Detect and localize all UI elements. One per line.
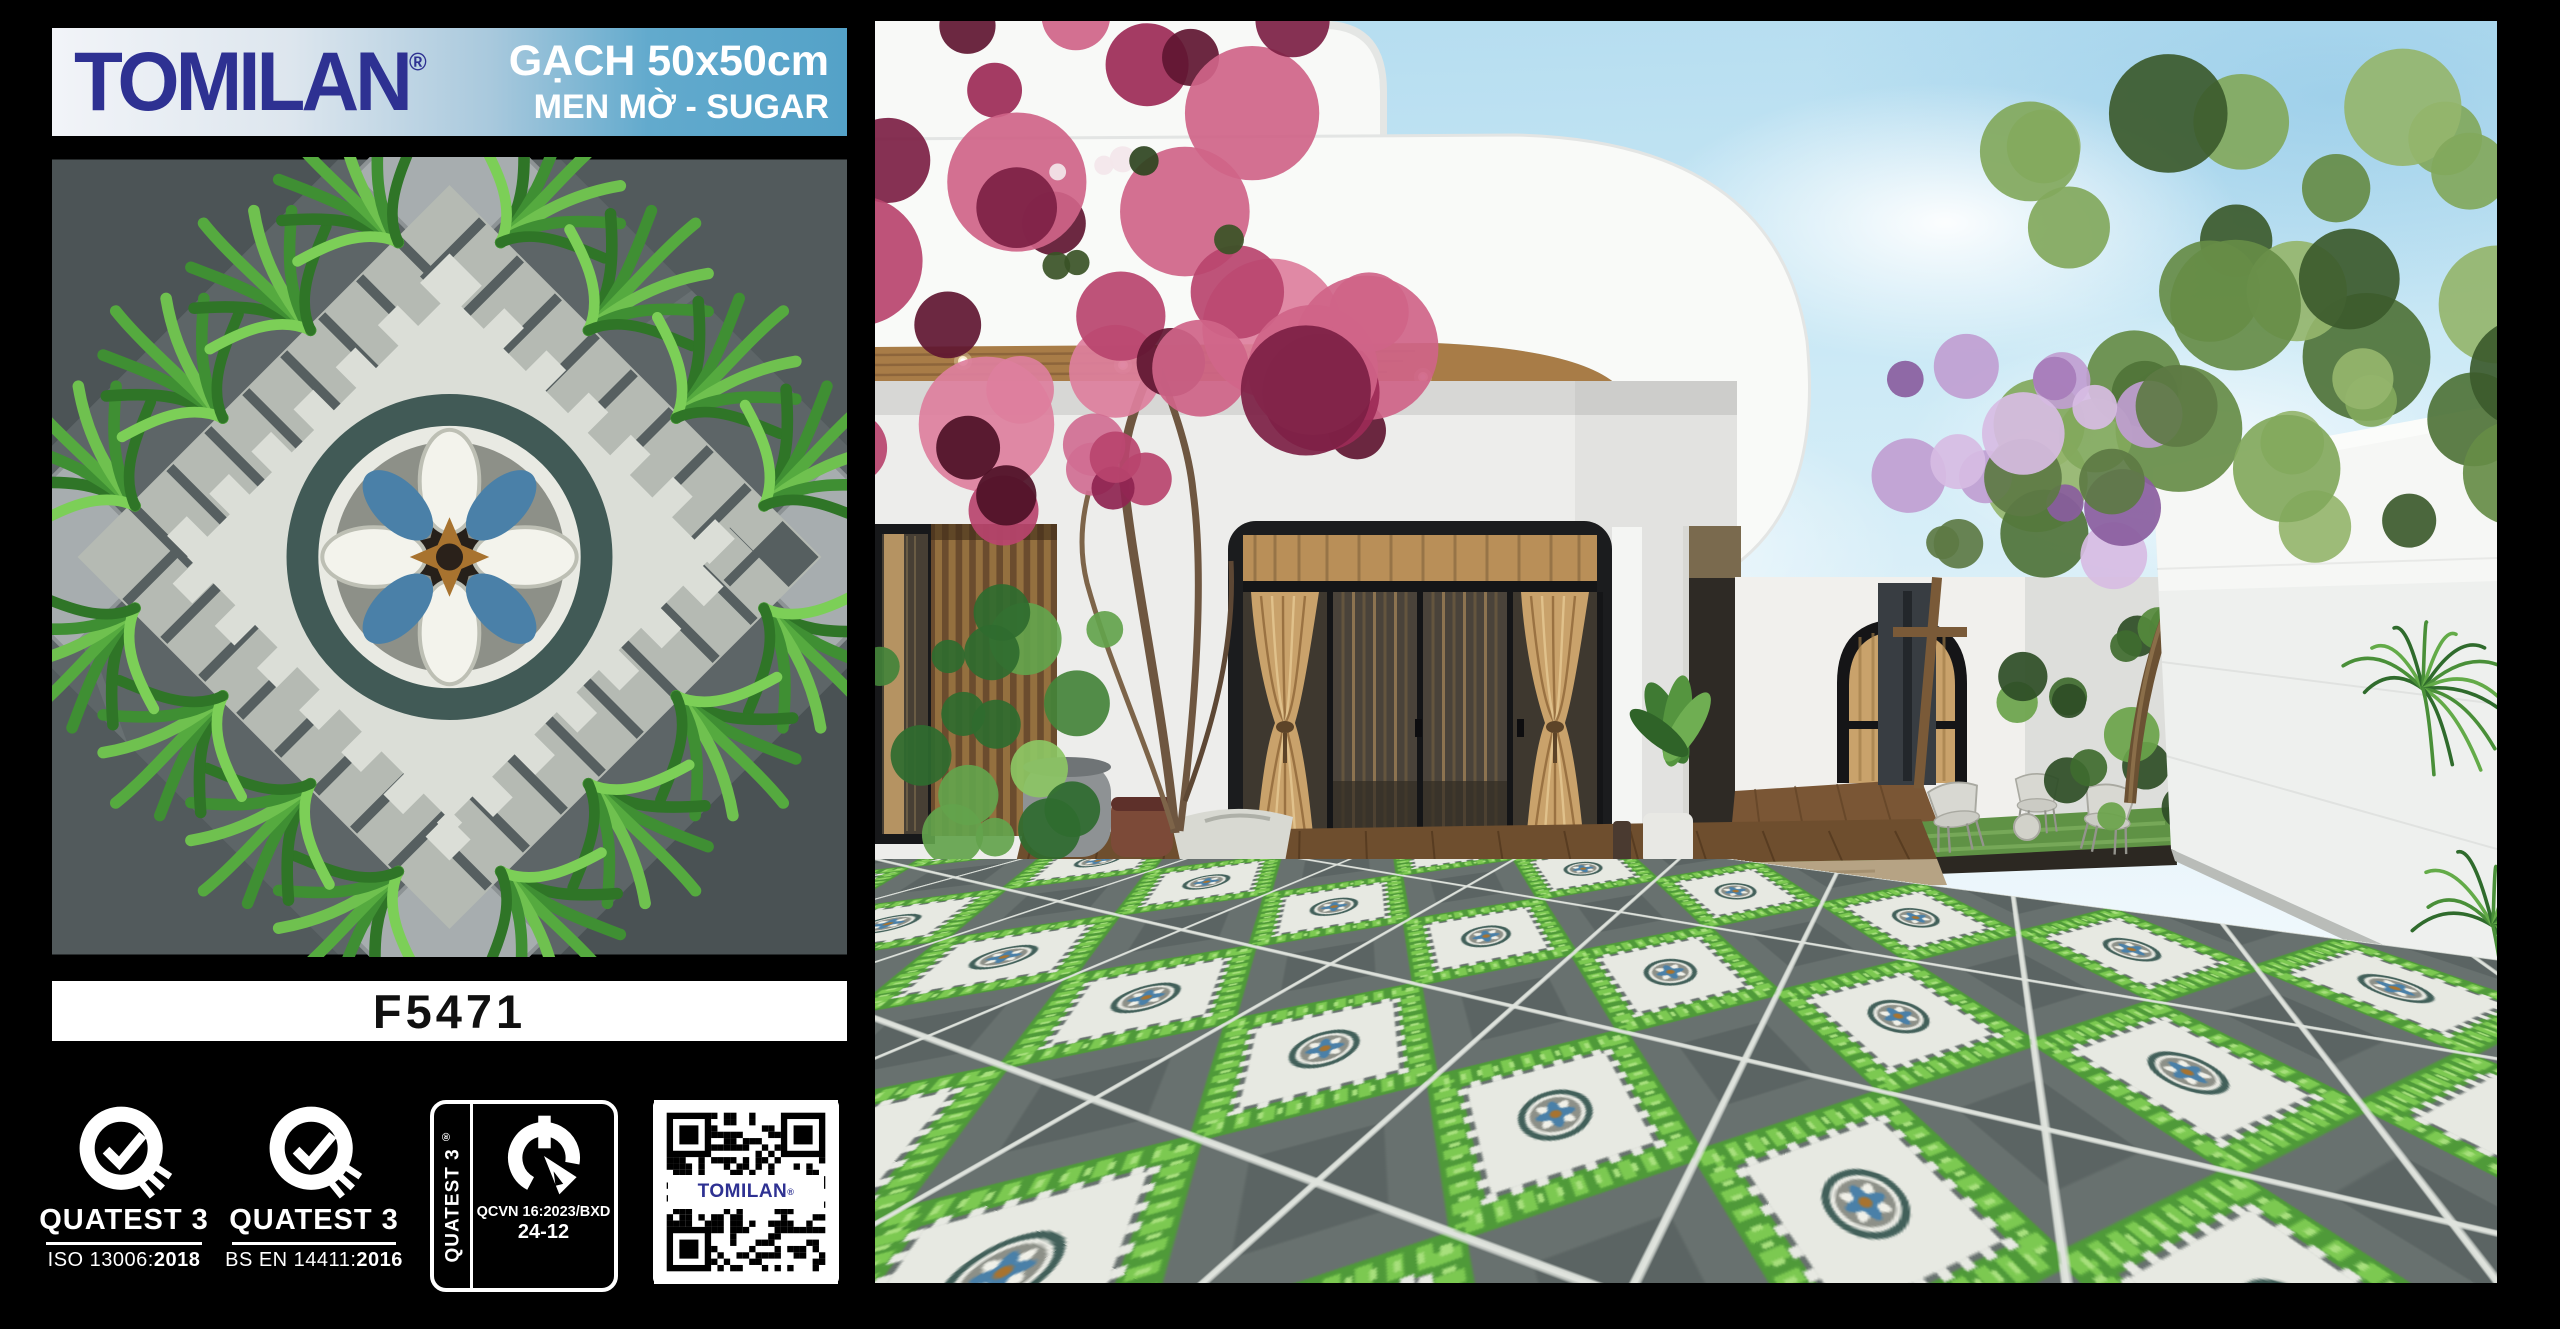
tile-poster: TOMILAN® GẠCH 50x50cm MEN MỜ - SUGAR F54… xyxy=(0,0,2560,1329)
cert-divider xyxy=(46,1242,202,1245)
qr-code: TOMILAN® xyxy=(653,1100,839,1284)
tile-size-label: GẠCH 50x50cm xyxy=(509,35,829,87)
header-banner: TOMILAN® GẠCH 50x50cm MEN MỜ - SUGAR xyxy=(52,28,847,136)
product-code-bar: F5471 xyxy=(52,981,847,1041)
cr-agency-strip: QUATEST 3 ® xyxy=(434,1104,473,1288)
cr-conformity-icon xyxy=(496,1108,592,1204)
cert-name: QUATEST 3 xyxy=(38,1204,210,1237)
cr-regulation: QCVN 16:2023/BXD xyxy=(477,1204,611,1220)
cr-mark-body: QCVN 16:2023/BXD 24-12 xyxy=(473,1104,614,1288)
cert-quatest-bsen: QUATEST 3 BS EN 14411:2016 xyxy=(224,1102,404,1272)
qr-brand-label: TOMILAN® xyxy=(668,1175,824,1208)
cert-divider xyxy=(232,1242,396,1245)
brand-name: TOMILAN xyxy=(74,35,409,128)
certifications-row: QUATEST 3 ISO 13006:2018 QUATEST 3 BS EN… xyxy=(0,1098,860,1298)
tile-sample-image xyxy=(52,157,847,957)
cr-certificate-number: 24-12 xyxy=(518,1221,569,1244)
brand-logo: TOMILAN® xyxy=(52,40,427,123)
cert-cr-mark: QUATEST 3 ® QCVN 16:2023/BXD 24-12 xyxy=(430,1100,618,1292)
cert-quatest-iso: QUATEST 3 ISO 13006:2018 xyxy=(38,1102,210,1272)
cert-name: QUATEST 3 xyxy=(224,1204,404,1237)
house-render xyxy=(875,21,2497,1283)
product-code: F5471 xyxy=(373,984,526,1039)
quatest-check-icon xyxy=(262,1102,366,1202)
registered-mark: ® xyxy=(409,49,427,77)
cr-agency-label: QUATEST 3 ® xyxy=(440,1129,464,1263)
tile-finish-label: MEN MỜ - SUGAR xyxy=(509,87,829,128)
product-spec-block: GẠCH 50x50cm MEN MỜ - SUGAR xyxy=(509,35,847,129)
cert-standard: BS EN 14411:2016 xyxy=(224,1249,404,1272)
scene-illustration xyxy=(875,21,2497,1283)
cert-standard: ISO 13006:2018 xyxy=(38,1249,210,1272)
quatest-check-icon xyxy=(72,1102,176,1202)
